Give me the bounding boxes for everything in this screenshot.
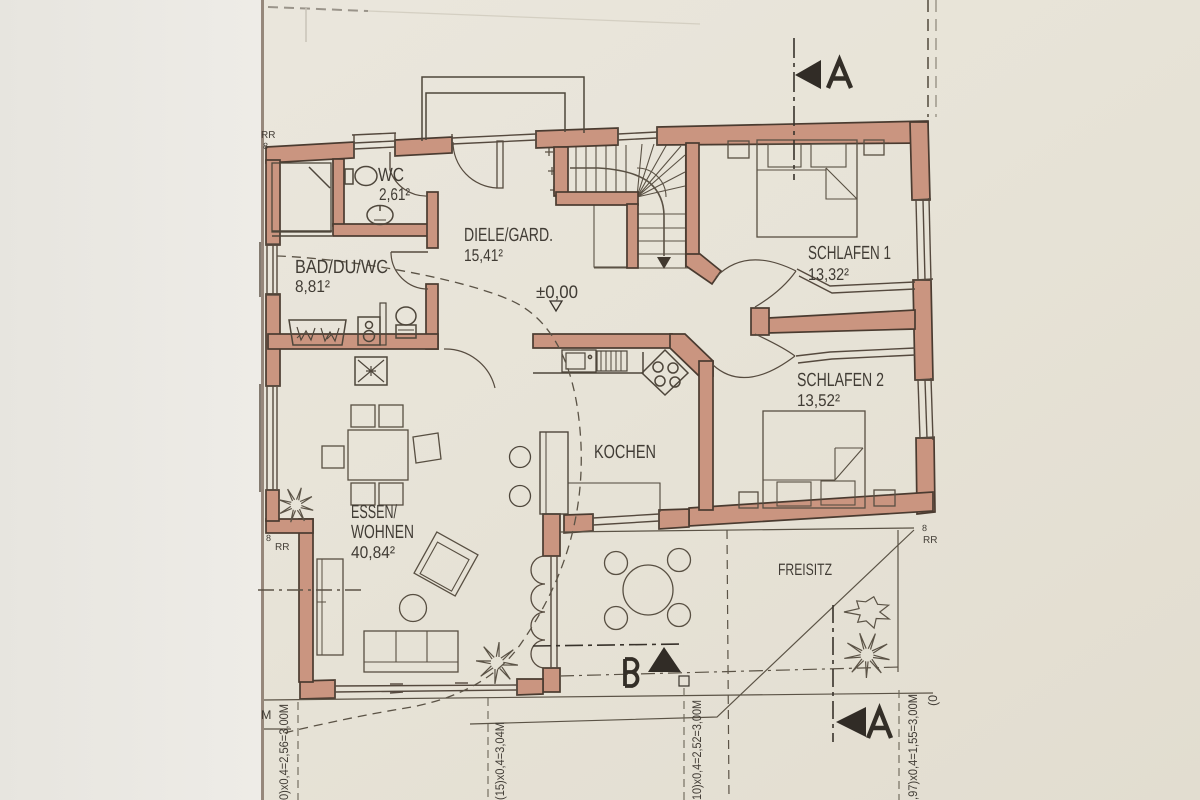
svg-text:13,52²: 13,52² bbox=[797, 391, 840, 410]
svg-text:10)x0,4=2,52=3,00M: 10)x0,4=2,52=3,00M bbox=[690, 700, 704, 800]
svg-text:2,61²: 2,61² bbox=[379, 185, 410, 204]
svg-text:0)x0,4=2,56=3,00M: 0)x0,4=2,56=3,00M bbox=[277, 704, 291, 800]
svg-text:DIELE/GARD.: DIELE/GARD. bbox=[464, 225, 553, 246]
svg-text:WOHNEN: WOHNEN bbox=[351, 522, 414, 543]
svg-text:RR: RR bbox=[275, 542, 289, 553]
svg-text:FREISITZ: FREISITZ bbox=[778, 561, 832, 579]
svg-text:40,84²: 40,84² bbox=[351, 543, 395, 562]
svg-text:WC: WC bbox=[378, 165, 404, 186]
svg-text:8: 8 bbox=[922, 523, 927, 533]
svg-text:KOCHEN: KOCHEN bbox=[594, 442, 656, 463]
svg-text:SCHLAFEN 2: SCHLAFEN 2 bbox=[797, 370, 884, 391]
svg-text:M: M bbox=[261, 708, 271, 722]
svg-text:SCHLAFEN 1: SCHLAFEN 1 bbox=[808, 243, 891, 264]
svg-text:15,41²: 15,41² bbox=[464, 246, 503, 265]
svg-text:8: 8 bbox=[266, 533, 271, 543]
svg-text:8,81²: 8,81² bbox=[295, 277, 330, 296]
svg-text:RR: RR bbox=[261, 130, 275, 141]
svg-text:,97)x0,4=1,55=3,00M: ,97)x0,4=1,55=3,00M bbox=[906, 694, 920, 800]
svg-text:13,32²: 13,32² bbox=[808, 265, 849, 284]
svg-text:(15)x0,4=3,04M: (15)x0,4=3,04M bbox=[493, 722, 507, 800]
svg-text:RR: RR bbox=[923, 535, 937, 546]
svg-text:ESSEN/: ESSEN/ bbox=[351, 502, 397, 523]
svg-text:(0: (0 bbox=[926, 695, 940, 706]
svg-text:BAD/DU/WC: BAD/DU/WC bbox=[295, 257, 388, 278]
svg-text:±0,00: ±0,00 bbox=[536, 282, 578, 302]
svg-text:8: 8 bbox=[263, 141, 268, 151]
